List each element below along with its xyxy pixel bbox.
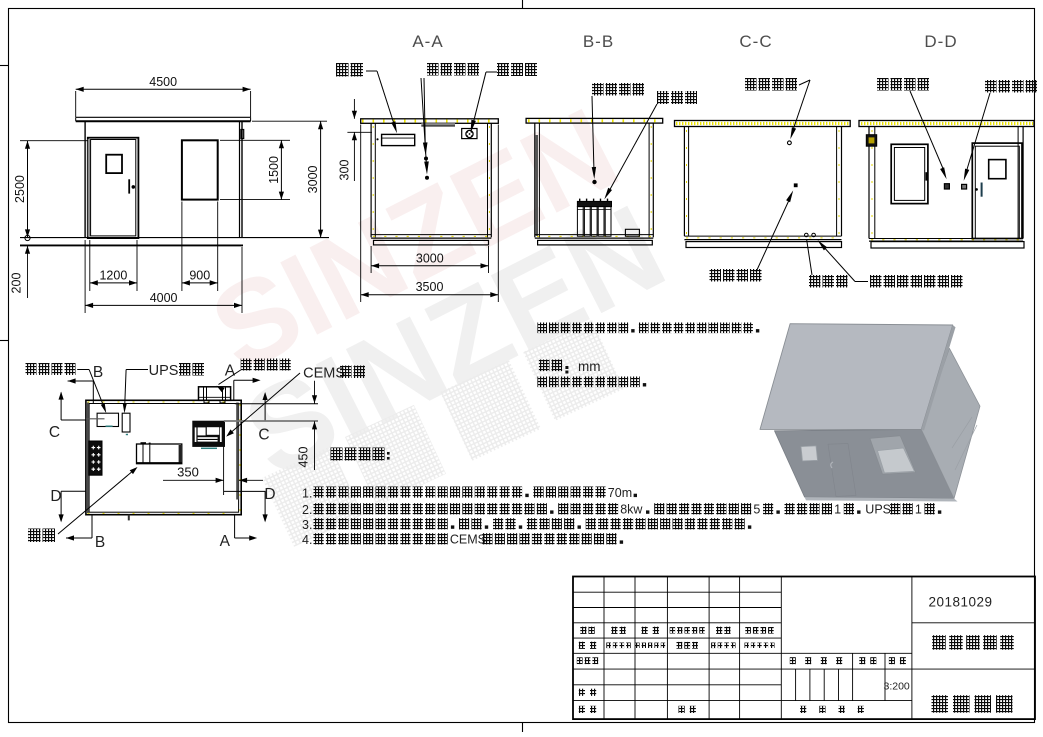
svg-text:D-D: D-D xyxy=(924,32,957,51)
svg-text:C: C xyxy=(49,424,60,441)
svg-text:A: A xyxy=(220,533,231,550)
svg-text:8kw: 8kw xyxy=(620,503,643,517)
svg-text:2.: 2. xyxy=(302,503,312,517)
svg-text:1.: 1. xyxy=(302,487,312,501)
svg-text:350: 350 xyxy=(177,465,199,480)
svg-text:4000: 4000 xyxy=(150,291,178,305)
svg-text:300: 300 xyxy=(338,160,352,181)
svg-text:C-C: C-C xyxy=(739,32,772,51)
svg-text:D: D xyxy=(264,486,275,503)
svg-text:70m: 70m xyxy=(608,486,632,500)
svg-text:3:200: 3:200 xyxy=(884,681,910,693)
svg-text:450: 450 xyxy=(297,447,311,468)
svg-text:1: 1 xyxy=(834,503,841,517)
svg-text:4500: 4500 xyxy=(149,75,177,89)
svg-text:20181029: 20181029 xyxy=(928,595,992,610)
svg-text:B: B xyxy=(95,534,105,551)
svg-text:D: D xyxy=(50,488,61,505)
svg-text:1200: 1200 xyxy=(99,268,127,282)
svg-text:1: 1 xyxy=(915,503,922,517)
svg-text:5: 5 xyxy=(753,503,760,517)
svg-text:UPS: UPS xyxy=(149,363,179,379)
svg-text:B-B: B-B xyxy=(583,32,614,51)
svg-text:C: C xyxy=(258,427,269,444)
svg-text:3.: 3. xyxy=(302,518,312,532)
svg-text:CEMS: CEMS xyxy=(450,533,486,547)
svg-text:3000: 3000 xyxy=(306,165,320,193)
svg-text:900: 900 xyxy=(189,268,210,282)
svg-text:mm: mm xyxy=(578,359,601,374)
svg-text:1500: 1500 xyxy=(267,156,281,184)
svg-text:3000: 3000 xyxy=(416,251,444,265)
svg-text:CEMS: CEMS xyxy=(303,366,345,382)
svg-text:A-A: A-A xyxy=(412,32,443,51)
svg-text:B: B xyxy=(93,364,103,381)
svg-text:200: 200 xyxy=(10,273,24,294)
svg-text:UPS: UPS xyxy=(865,503,891,517)
svg-text:3500: 3500 xyxy=(416,280,444,294)
svg-text:4.: 4. xyxy=(302,533,312,547)
svg-text:2500: 2500 xyxy=(13,175,27,203)
